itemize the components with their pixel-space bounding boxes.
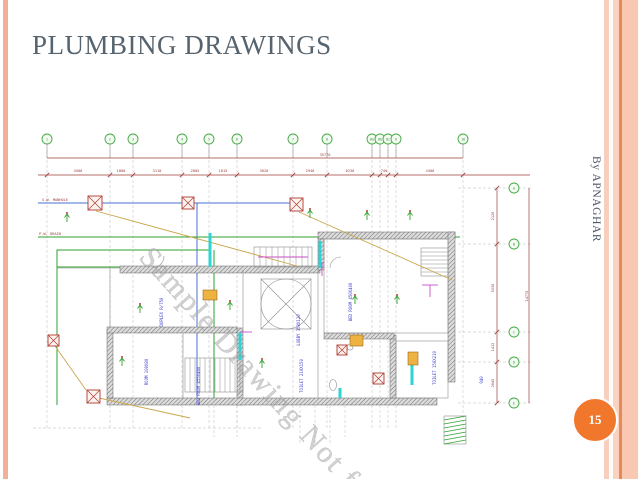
- grid-bubble-label: 8a: [370, 138, 374, 142]
- grid-bubble-label: A: [513, 187, 515, 191]
- toilet-fixture: [330, 380, 337, 391]
- vent-symbol-tip: [121, 356, 123, 358]
- grid-bubble-label: C: [513, 331, 515, 335]
- vent-symbol-tip: [139, 303, 141, 305]
- grid-bubble-label: 3: [132, 138, 134, 142]
- wall: [448, 232, 455, 382]
- cutout-diagonals: [261, 279, 311, 329]
- vent-symbol-tip: [396, 294, 398, 296]
- page-number: 15: [589, 412, 602, 428]
- overall-dimension-right: 14775: [525, 291, 529, 302]
- vent-symbol-tip: [229, 300, 231, 302]
- dimension-label: 4500: [74, 169, 83, 173]
- exterior-stair-hatch-line: [444, 428, 466, 432]
- exterior-stair-hatch-line: [444, 416, 466, 420]
- furniture-block: [408, 352, 418, 365]
- wall: [318, 232, 455, 239]
- wall: [107, 330, 113, 398]
- vent-symbol: [353, 296, 358, 304]
- pipe-annotation: P.W. DRAIN: [39, 232, 61, 236]
- exterior-stair-hatch: [444, 416, 466, 444]
- room-label: TOILET 150X210: [432, 351, 437, 385]
- grid-bubble-label: 8c: [386, 138, 390, 142]
- dimension-label: 2045: [491, 379, 495, 388]
- room-label: 940: [479, 376, 484, 384]
- room-label: TOILET 210X150: [299, 359, 304, 393]
- vent-symbol-tip: [66, 212, 68, 214]
- vent-symbol-tip: [309, 208, 311, 210]
- grid-bubble-label: E: [513, 402, 515, 406]
- drain-connection-line: [55, 346, 86, 390]
- exterior-stair-hatch-line: [444, 436, 466, 440]
- exterior-stair-hatch-line: [444, 440, 466, 444]
- furniture-block: [350, 335, 363, 346]
- pipe-annotation: S.W. MANHOLE: [42, 198, 68, 202]
- room-outline: [396, 341, 448, 398]
- slide-canvas: PLUMBING DRAWINGS By APNAGHAR 15 1234567…: [0, 0, 638, 479]
- exterior-stair-hatch-line: [444, 424, 466, 428]
- grid-bubble-label: D: [513, 361, 515, 365]
- overall-dimension: 35770: [320, 153, 331, 157]
- vent-symbol: [120, 358, 125, 366]
- grid-bubble-label: 10: [461, 138, 465, 142]
- vent-symbol: [308, 210, 313, 218]
- dimension-label: 5530: [491, 284, 495, 293]
- room-outline: [324, 239, 448, 333]
- vent-symbol: [395, 296, 400, 304]
- vent-symbol: [65, 214, 70, 222]
- dimension-label: 3110: [153, 169, 162, 173]
- room-label: BED ROOM 455X480: [196, 366, 201, 405]
- dimension-label: 6230: [346, 169, 355, 173]
- room-label: ROOM 100X80: [144, 358, 149, 385]
- dimension-label: 3620: [260, 169, 269, 173]
- dimension-label: 4300: [426, 169, 435, 173]
- grid-bubble-label: 7: [292, 138, 294, 142]
- grid-bubble-label: 4: [181, 138, 183, 142]
- plumbing-plan-drawing: 123456788a8b8c910ABCDE: [0, 0, 638, 479]
- vent-symbol: [365, 212, 370, 220]
- dimension-label: 1815: [219, 169, 228, 173]
- grid-bubble-label: 2: [109, 138, 111, 142]
- grid-bubble-label: 9: [395, 138, 397, 142]
- dimension-label: 1412: [491, 343, 495, 352]
- dimension-label: 740: [381, 169, 388, 173]
- grid-bubble-label: 5: [208, 138, 210, 142]
- grid-bubble-label: B: [513, 243, 515, 247]
- room-label: DUPLEX R/750: [159, 297, 164, 326]
- wall: [390, 335, 396, 398]
- vent-symbol-tip: [366, 210, 368, 212]
- grid-bubble-label: 8: [326, 138, 328, 142]
- room-label: LOBBY 350X120: [296, 314, 301, 346]
- vent-symbol: [228, 302, 233, 310]
- watermark-text: Sample Drawing Not fo: [133, 241, 378, 479]
- dimension-label: 2005: [191, 169, 200, 173]
- dimension-label: 2940: [306, 169, 315, 173]
- dimension-label: 2120: [491, 212, 495, 221]
- terrace-outline: [57, 250, 210, 267]
- exterior-stair-hatch-line: [444, 420, 466, 424]
- grid-bubble-label: 8b: [378, 138, 382, 142]
- room-label: BED ROOM 450X400: [348, 282, 353, 321]
- grid-bubble-label: 6: [236, 138, 238, 142]
- vent-symbol-tip: [409, 210, 411, 212]
- vent-symbol: [408, 212, 413, 220]
- dimension-label: 1800: [117, 169, 126, 173]
- exterior-stair-hatch-line: [444, 432, 466, 436]
- grid-bubble-label: 1: [46, 138, 48, 142]
- vent-symbol: [138, 305, 143, 313]
- vent-symbol-tip: [354, 294, 356, 296]
- page-number-badge: 15: [572, 397, 618, 443]
